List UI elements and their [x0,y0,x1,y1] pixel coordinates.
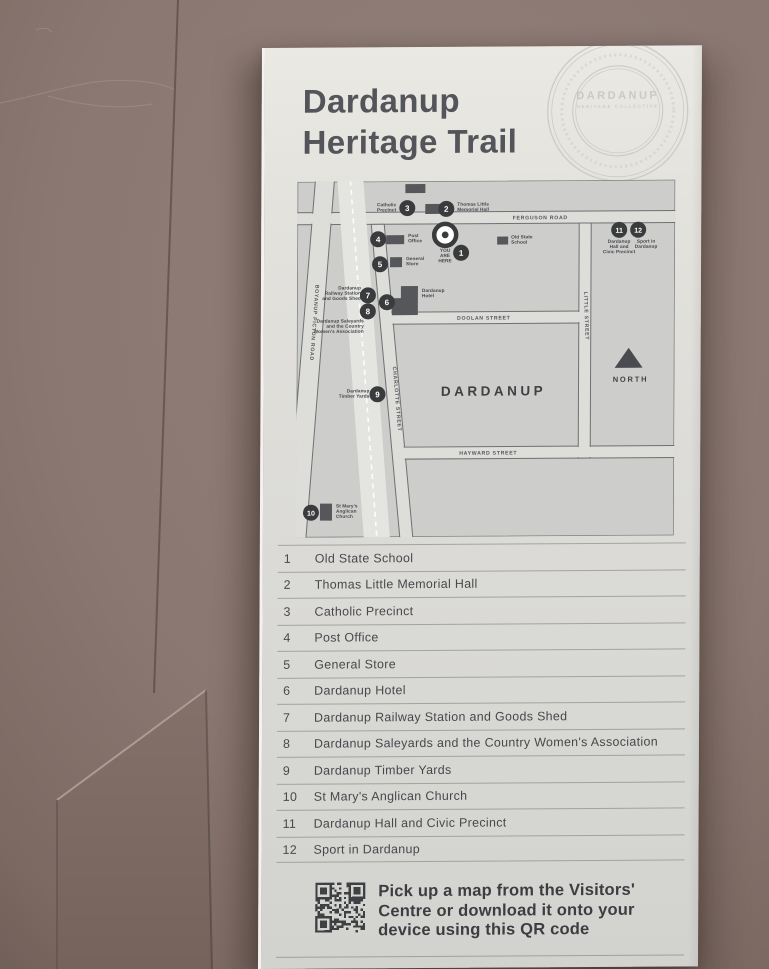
title-line-1: Dardanup [303,79,518,121]
legend-site-name: Old State School [315,551,414,566]
legend-row-1: 1Old State School [278,542,686,571]
legend-site-name: Thomas Little Memorial Hall [315,577,478,592]
svg-text:11: 11 [615,228,623,235]
title-line-2: Heritage Trail [302,120,517,162]
legend-number: 10 [277,790,314,804]
street-label: DOOLAN STREET [457,315,511,321]
legend-site-name: Sport in Dardanup [313,842,420,857]
svg-text:7: 7 [366,291,371,300]
svg-text:4: 4 [376,235,381,244]
legend-row-4: 4Post Office [277,622,685,651]
legend-site-name: Dardanup Saleyards and the Country Women… [314,735,658,751]
legend-site-name: Dardanup Timber Yards [314,763,452,778]
legend-site-name: Dardanup Hall and Civic Precinct [314,815,507,830]
you-are-here-label: YOUAREHERE [438,248,452,263]
map-site-label: Thomas LittleMemorial Hall [457,202,489,212]
map-site-label: CatholicPrecinct [377,202,397,212]
legend-number: 7 [277,710,314,724]
svg-text:5: 5 [378,260,383,269]
qr-instructions-line: Pick up a map from the Visitors' [378,881,635,902]
legend-site-name: Post Office [314,631,378,645]
legend-number: 4 [277,631,314,645]
heritage-trail-sign: DARDANUP HERITAGE COLLECTIVE Dardanup He… [258,45,702,969]
legend-site-name: St Mary's Anglican Church [314,789,468,804]
north-label: NORTH [613,375,649,384]
legend-site-name: Catholic Precinct [315,604,414,619]
qr-instructions: Pick up a map from the Visitors' Centre … [378,881,635,941]
building-old-state-school [497,236,508,244]
building-catholic-precinct [405,184,425,193]
svg-text:12: 12 [634,228,642,235]
bottom-divider [276,954,684,957]
legend-site-name: Dardanup Hotel [314,683,406,698]
svg-text:6: 6 [385,298,390,307]
street-label: HAYWARD STREET [459,450,517,456]
stamp-ring-text-dots [561,54,673,167]
stamp-subtitle: HERITAGE COLLECTIVE [577,104,659,109]
qr-instructions-line: device using this QR code [378,920,635,941]
legend-number: 12 [276,842,313,856]
legend-row-7: 7Dardanup Railway Station and Goods Shed [277,701,685,730]
town-label: DARDANUP [441,383,546,399]
building-post-office [386,235,404,244]
trail-map: NORTH DARDANUP YOUAREHERE FERGUSON ROADD… [296,179,676,537]
map-site-label: Sport inDardanup [635,239,658,249]
svg-text:2: 2 [444,205,449,214]
legend-row-3: 3Catholic Precinct [277,595,685,624]
svg-text:8: 8 [366,307,371,316]
qr-section: Pick up a map from the Visitors' Centre … [315,881,635,941]
legend-number: 6 [277,684,314,698]
legend-number: 9 [277,763,314,777]
street-label: FERGUSON ROAD [513,215,568,221]
legend-row-10: 10St Mary's Anglican Church [277,781,685,810]
you-are-here-bullseye [434,224,456,246]
svg-text:1: 1 [459,249,464,258]
legend-row-9: 9Dardanup Timber Yards [277,754,685,783]
legend-row-2: 2Thomas Little Memorial Hall [278,569,686,598]
legend-row-5: 5General Store [277,648,685,677]
heritage-collective-stamp: DARDANUP HERITAGE COLLECTIVE [542,45,693,186]
legend-row-6: 6Dardanup Hotel [277,675,685,704]
legend-number: 3 [278,604,315,618]
stamp-name: DARDANUP [576,90,659,103]
legend-number: 2 [278,578,315,592]
building-memorial-hall [425,204,440,214]
qr-instructions-line: Centre or download it onto your [378,900,635,921]
legend-site-name: General Store [314,657,396,671]
sign-photo-scene: DARDANUP HERITAGE COLLECTIVE Dardanup He… [0,0,769,969]
legend-number: 1 [278,551,315,565]
legend-row-8: 8Dardanup Saleyards and the Country Wome… [277,728,685,757]
qr-code [315,882,365,932]
svg-text:3: 3 [405,204,410,213]
legend-row-12: 12Sport in Dardanup [276,834,684,863]
building-general-store [390,257,402,267]
legend-number: 11 [277,816,314,830]
svg-text:9: 9 [375,390,380,399]
legend-site-name: Dardanup Railway Station and Goods Shed [314,709,567,725]
legend-number: 8 [277,737,314,751]
legend-number: 5 [277,657,314,671]
building-st-marys-church [320,504,332,521]
svg-text:10: 10 [307,511,315,518]
legend-list: 1Old State School2Thomas Little Memorial… [276,542,685,863]
sign-title: Dardanup Heritage Trail [302,79,517,162]
legend-row-11: 11Dardanup Hall and Civic Precinct [277,807,685,836]
